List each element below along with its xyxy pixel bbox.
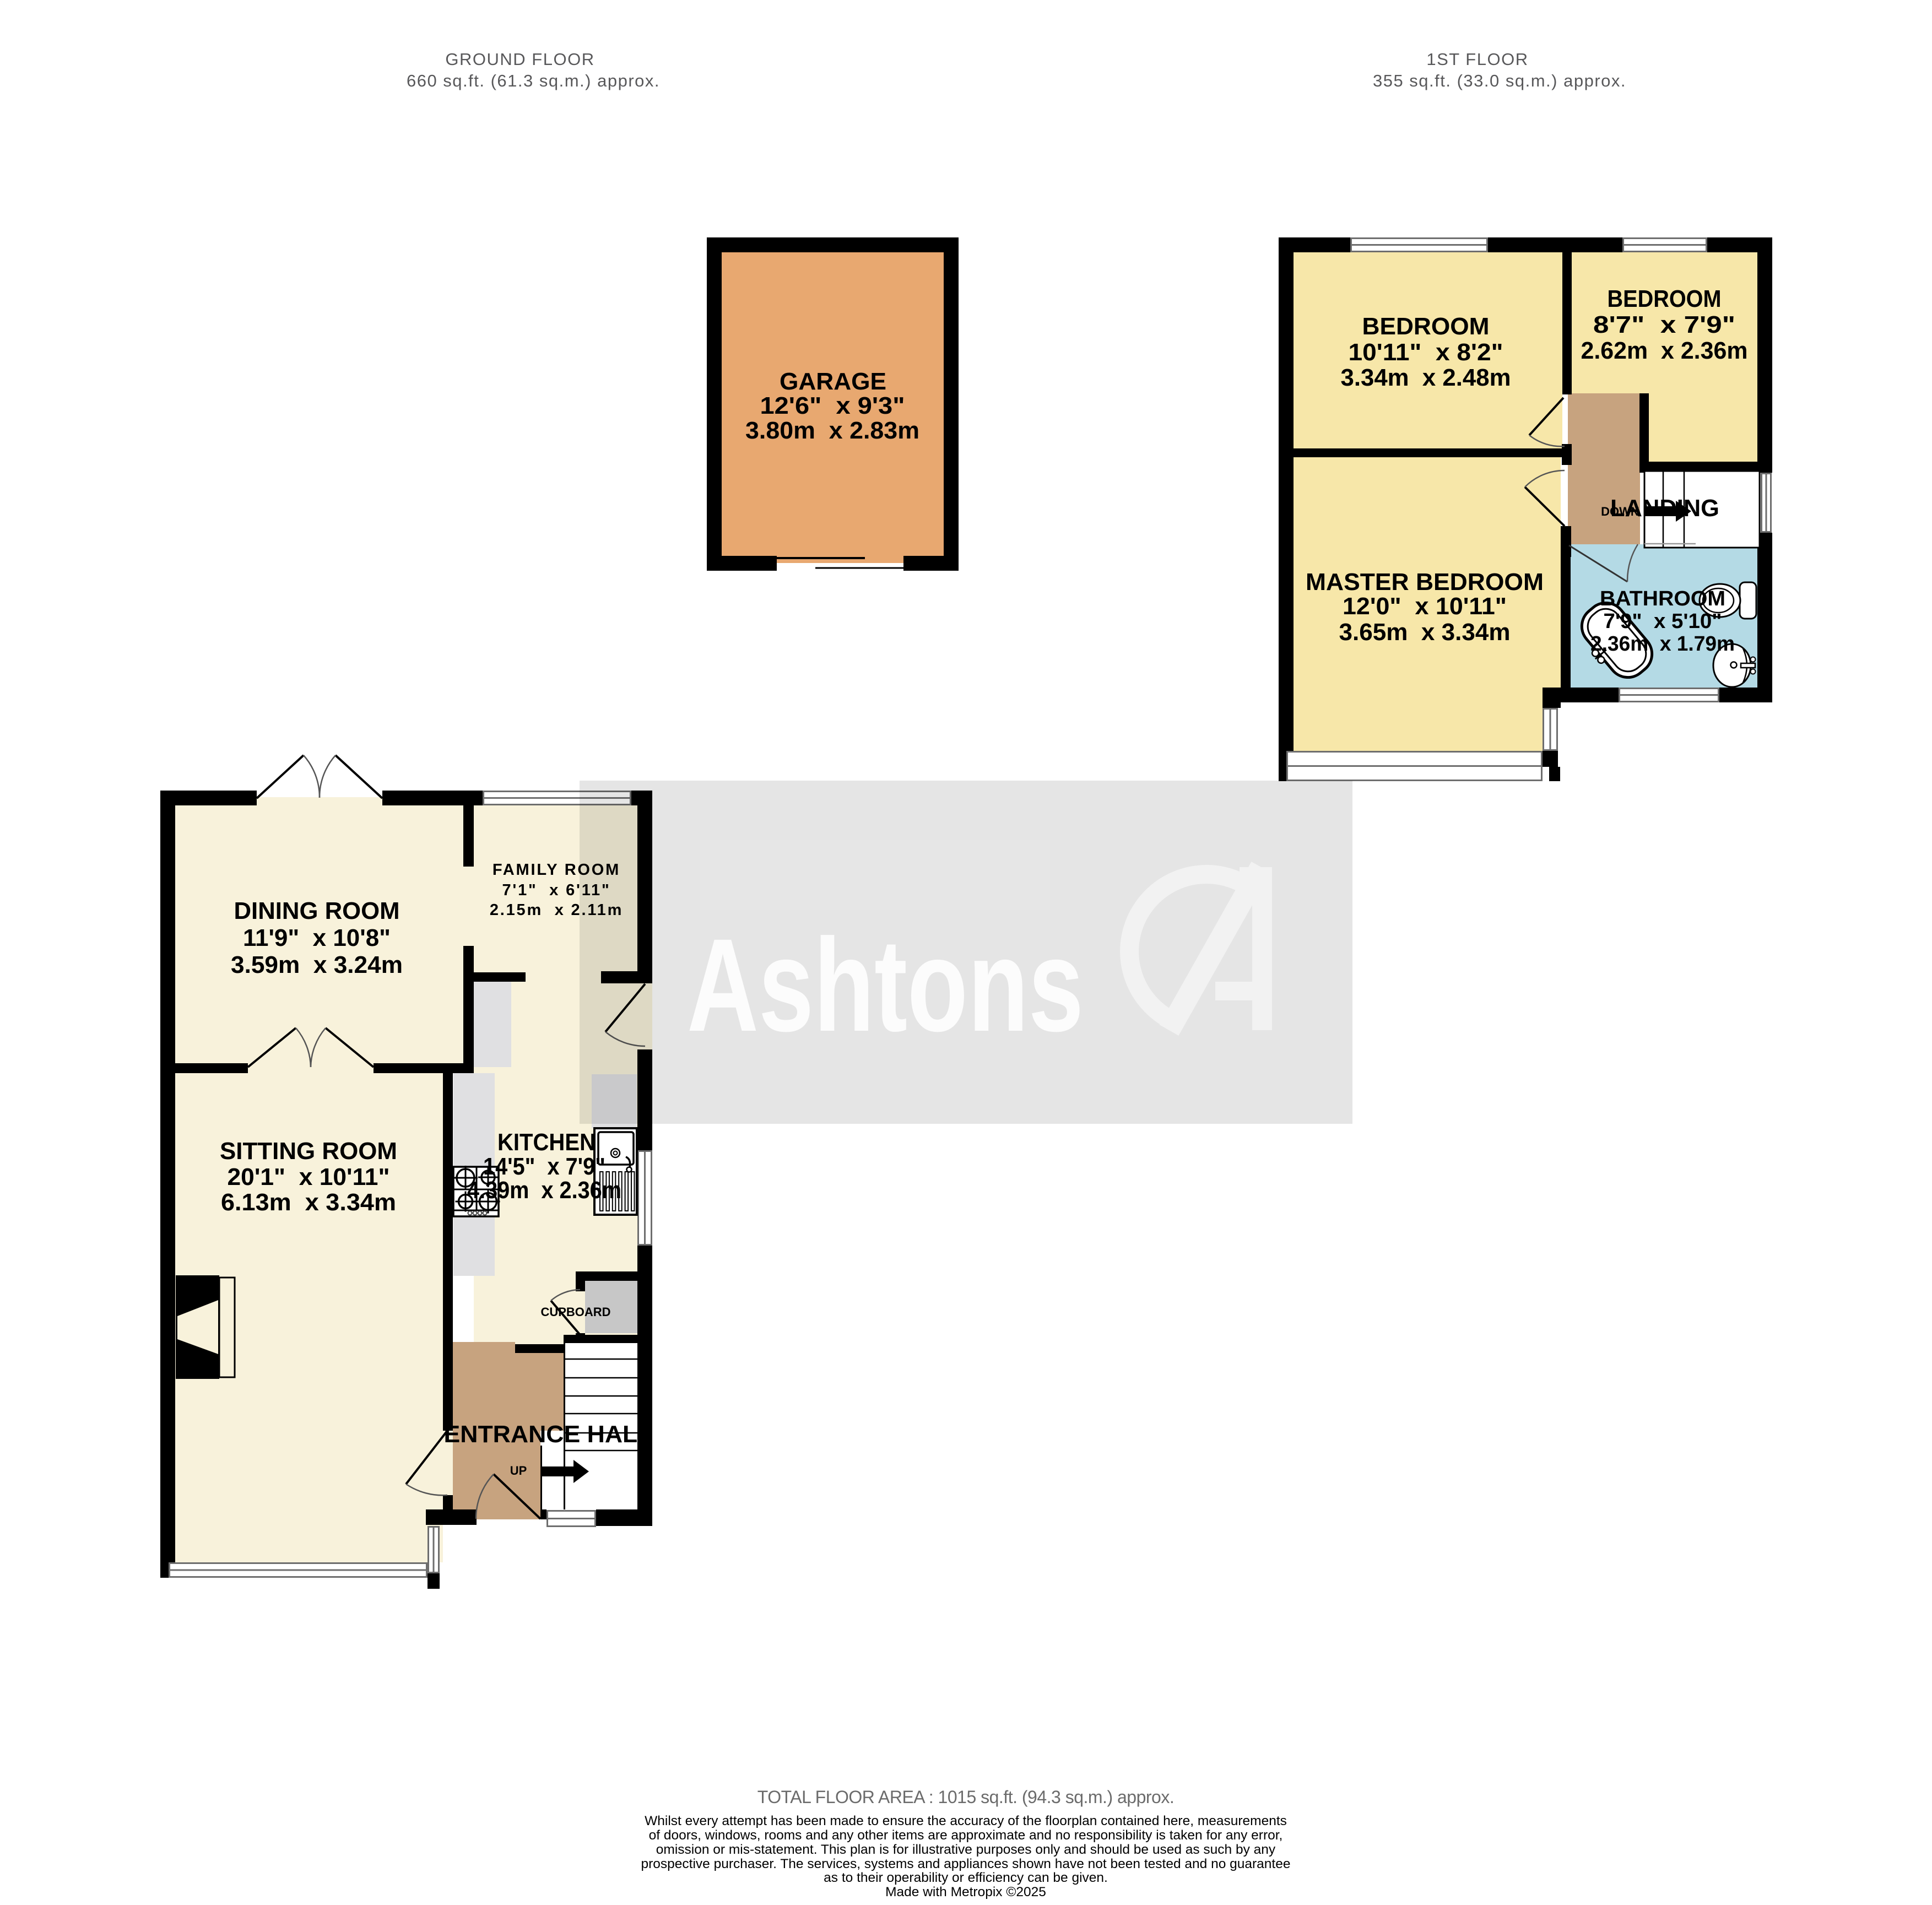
svg-text:Made with Metropix ©2025: Made with Metropix ©2025 (885, 1885, 1046, 1899)
svg-text:GROUND FLOOR: GROUND FLOOR (445, 50, 594, 69)
svg-text:Whilst every attempt has been: Whilst every attempt has been made to en… (645, 1814, 1287, 1828)
svg-text:omission or mis-statement. Thi: omission or mis-statement. This plan is … (656, 1842, 1276, 1857)
svg-text:of doors, windows, rooms and a: of doors, windows, rooms and any other i… (649, 1828, 1283, 1843)
svg-text:BEDROOM: BEDROOM (1362, 313, 1490, 340)
svg-text:SITTING ROOM: SITTING ROOM (220, 1138, 397, 1165)
svg-text:6.13m x 3.34m: 6.13m x 3.34m (221, 1189, 396, 1216)
svg-text:14'5" x 7'9": 14'5" x 7'9" (483, 1153, 605, 1180)
svg-text:BEDROOM: BEDROOM (1608, 285, 1722, 312)
svg-text:prospective purchaser. The ser: prospective purchaser. The services, sys… (641, 1857, 1290, 1871)
svg-text:ENTRANCE HALL: ENTRANCE HALL (444, 1421, 653, 1448)
svg-text:3.34m x 2.48m: 3.34m x 2.48m (1341, 364, 1511, 391)
svg-text:7'9" x 5'10": 7'9" x 5'10" (1604, 610, 1722, 633)
svg-text:12'0" x 10'11": 12'0" x 10'11" (1343, 593, 1507, 620)
svg-text:1ST FLOOR: 1ST FLOOR (1426, 50, 1528, 69)
svg-text:DINING ROOM: DINING ROOM (234, 897, 400, 924)
svg-text:LANDING: LANDING (1610, 495, 1719, 522)
svg-text:3.80m x 2.83m: 3.80m x 2.83m (745, 417, 919, 444)
svg-text:4.39m x 2.36m: 4.39m x 2.36m (467, 1177, 621, 1204)
svg-text:10'11" x 8'2": 10'11" x 8'2" (1349, 339, 1503, 366)
svg-text:20'1" x 10'11": 20'1" x 10'11" (228, 1163, 390, 1190)
svg-text:3.59m x 3.24m: 3.59m x 3.24m (231, 951, 403, 978)
svg-text:BATHROOM: BATHROOM (1600, 587, 1725, 610)
svg-text:12'6" x 9'3": 12'6" x 9'3" (760, 392, 905, 419)
svg-text:2.62m x 2.36m: 2.62m x 2.36m (1581, 337, 1748, 364)
svg-text:660 sq.ft. (61.3 sq.m.) approx: 660 sq.ft. (61.3 sq.m.) approx. (407, 71, 660, 90)
svg-text:KITCHEN: KITCHEN (497, 1129, 596, 1156)
svg-text:GARAGE: GARAGE (780, 368, 886, 395)
svg-text:TOTAL FLOOR AREA : 1015 sq.ft.: TOTAL FLOOR AREA : 1015 sq.ft. (94.3 sq.… (757, 1787, 1174, 1807)
svg-text:CUPBOARD: CUPBOARD (540, 1305, 610, 1319)
svg-text:as to their operability or eff: as to their operability or efficiency ca… (824, 1870, 1108, 1885)
svg-text:8'7" x 7'9": 8'7" x 7'9" (1593, 311, 1735, 338)
svg-text:2.36m x 1.79m: 2.36m x 1.79m (1590, 632, 1735, 656)
svg-text:Ashtons: Ashtons (687, 911, 1084, 1059)
svg-text:UP: UP (510, 1464, 527, 1478)
svg-text:355 sq.ft. (33.0 sq.m.) approx: 355 sq.ft. (33.0 sq.m.) approx. (1373, 71, 1626, 90)
svg-text:MASTER BEDROOM: MASTER BEDROOM (1306, 569, 1544, 596)
svg-text:11'9" x 10'8": 11'9" x 10'8" (243, 924, 391, 951)
svg-text:3.65m x 3.34m: 3.65m x 3.34m (1339, 619, 1511, 646)
